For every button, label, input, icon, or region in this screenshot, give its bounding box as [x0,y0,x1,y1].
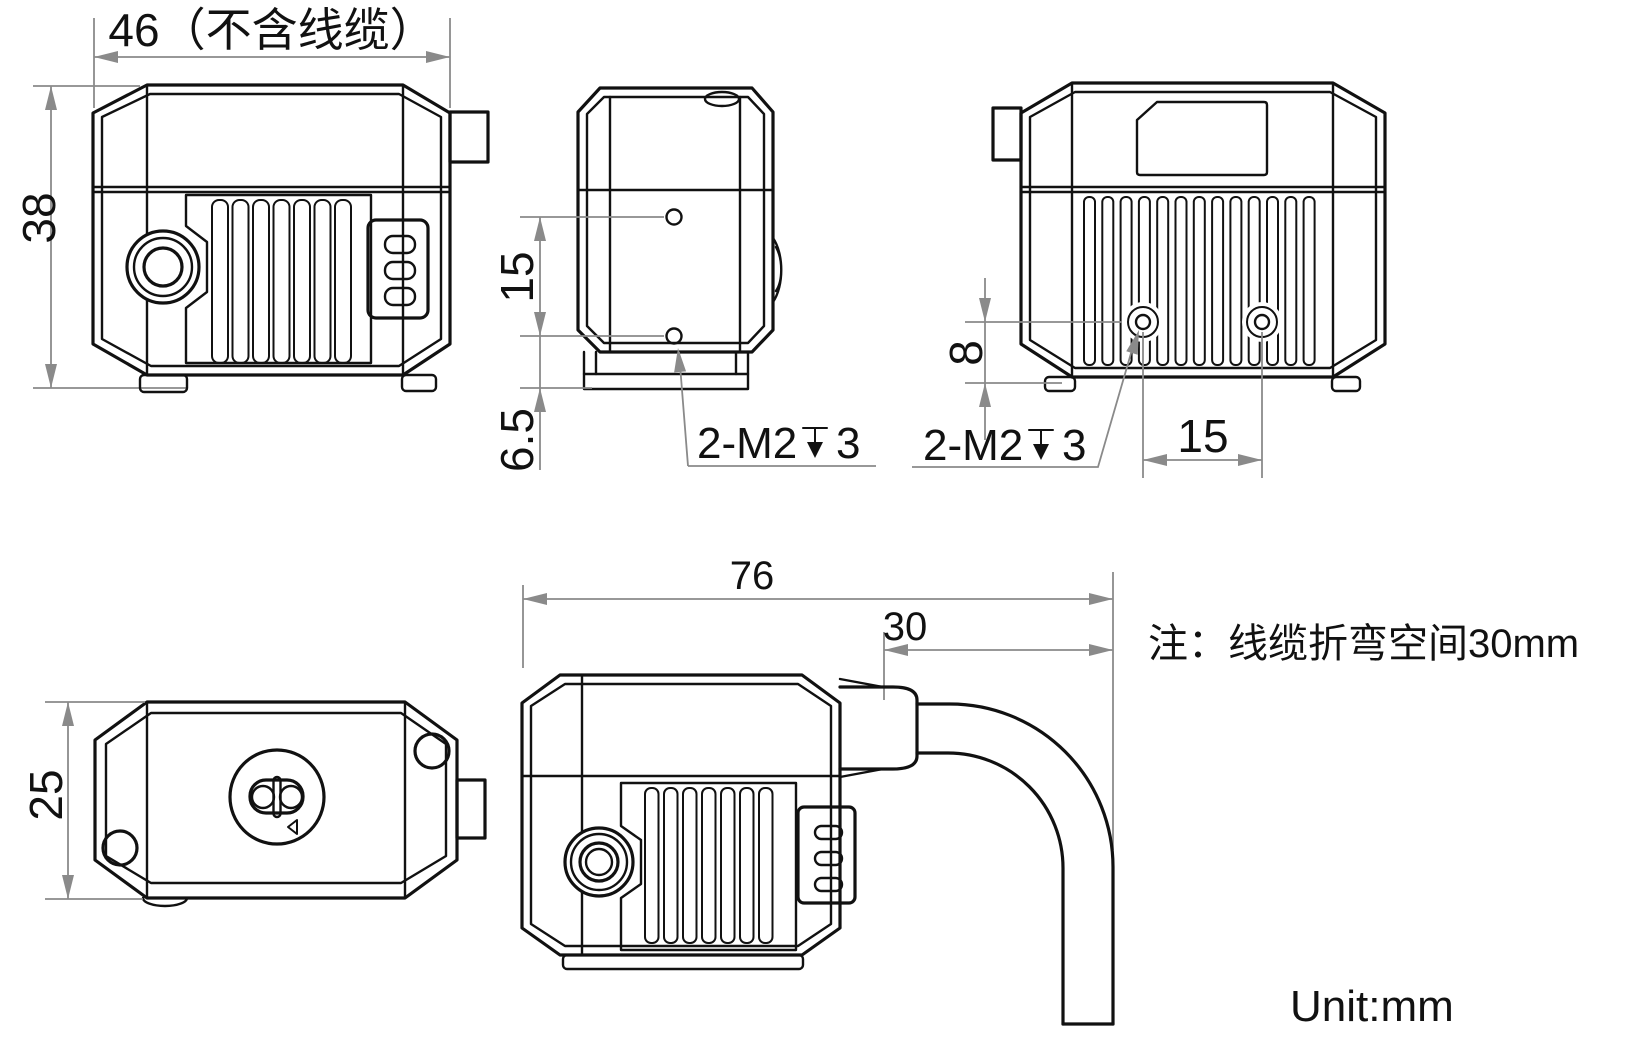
rear-foot-right [1332,377,1360,391]
fin-slot [1157,197,1168,365]
cable-body-inner-outline [531,684,831,946]
fin-slot [233,200,249,363]
led-indicator-block [798,807,855,903]
fin-slot [702,788,716,943]
arrowhead-up [979,383,991,407]
rear-frame-edges [1072,83,1333,377]
front-foot-right [402,375,436,391]
arrowhead-down [62,875,74,899]
arrowhead-left [1143,454,1167,466]
fin-slot [683,788,697,943]
corner-hole [103,831,137,865]
fin-slot [335,200,351,363]
dimension-drawing-page: 46（不含线缆） 38 [0,0,1630,1053]
top-view: 25 [20,702,485,906]
led-indicator-block [368,220,428,318]
corner-hole [415,734,449,768]
cable [840,679,1113,1024]
side-foot [584,374,748,389]
arrowhead-down [45,364,57,388]
cable-gland [840,687,917,769]
top-body-outline [95,702,457,898]
fin-slot [212,200,228,363]
front-view: 46（不含线缆） 38 [13,4,488,392]
side-hole-edge-label: 6.5 [491,408,543,472]
fin-slot [721,788,735,943]
side-hole-spacing-label: 15 [491,251,543,302]
led-window [385,236,415,253]
dial-pointer-icon [288,820,297,834]
rear-view: 8 15 2-M2 3 [912,83,1385,478]
bend-space-label: 30 [883,605,928,649]
bend-space-dimension: 30 [883,605,1113,700]
mount-hole [667,210,682,225]
cable-connector-stub [457,780,485,838]
gland-taper [840,679,883,777]
front-width-label: 46（不含线缆） [108,4,435,56]
lens-assembly [127,231,199,303]
rear-body-outline [1021,83,1385,377]
fin-slot [315,200,331,363]
fin-slot [1121,197,1132,365]
side-view: 15 6.5 2-M2 3 [491,88,876,472]
arrowhead-down [534,312,546,336]
rear-hole-spacing-label: 15 [1177,410,1228,462]
fin-slot [1176,197,1187,365]
fin-slot [759,788,773,943]
screw-bosses [1123,302,1282,342]
led-block-outline [798,807,855,903]
led-window [815,878,842,891]
arrowhead-right [1089,593,1113,605]
arrowhead-left [523,593,547,605]
fin-slot [1102,197,1113,365]
side-body-outline [578,88,773,352]
led-window [815,852,842,865]
led-block-outline [368,220,428,318]
fin-slot [1194,197,1205,365]
fin-slot [294,200,310,363]
unit-label: Unit:mm [1290,982,1454,1031]
top-depth-label: 25 [20,769,72,820]
side-base-notches [584,352,748,374]
fin-slot [1304,197,1315,365]
top-frame-edges [147,702,405,898]
focus-dial [230,750,324,844]
arrowhead-up [45,86,57,110]
heatsink-fins [212,200,351,363]
depth-symbol-icon [803,428,827,458]
dial-eye [280,786,302,808]
side-hole-edge-dimension: 6.5 [491,336,592,472]
cable-bend-note: 注：线缆折弯空间30mm [1148,622,1579,666]
thread-callout-prefix: 2-M2 [923,421,1023,470]
fin-slot [274,200,290,363]
thread-callout-depth: 3 [836,419,860,468]
cable-side-view: 76 30 [522,554,1113,1024]
top-hole [705,92,739,106]
dial-outline [230,750,324,844]
side-thread-callout: 2-M2 3 [672,347,876,468]
led-window [385,288,415,305]
front-foot-left [140,375,187,392]
arrowhead-up [62,702,74,726]
front-body-inner-outline [102,94,441,366]
cable-connector-stub [450,112,488,162]
heatsink-fins [645,788,773,943]
front-height-label: 38 [13,192,65,243]
thread-callout-depth: 3 [1062,421,1086,470]
rear-hole-spacing-dimension: 15 [1143,332,1262,478]
device-dimension-drawing: 46（不含线缆） 38 [0,0,1630,1053]
rear-foot-left [1045,377,1075,391]
led-window [385,262,415,279]
total-width-label: 76 [730,554,775,598]
fin-slot [664,788,678,943]
fin-slot [1230,197,1241,365]
lens-assembly [565,828,633,896]
rear-label-recess [1137,102,1267,175]
side-body-inner-outline [587,97,764,343]
rear-body-inner-outline [1030,92,1376,368]
thread-callout-prefix: 2-M2 [697,419,797,468]
top-body-inner-outline [106,713,446,883]
led-window [815,826,842,839]
fin-slot [253,200,269,363]
base-foot [563,955,803,969]
arrowhead-right [1089,644,1113,656]
fin-slot [1212,197,1223,365]
mount-hole [667,329,682,344]
fin-slot [1285,197,1296,365]
fin-slot [740,788,754,943]
cable-connector-stub [993,108,1021,160]
heatsink-plate [621,783,796,950]
cable-body-outline [522,675,840,955]
cable-inner-edge [917,753,1063,1024]
rear-hole-height-label: 8 [940,340,992,366]
arrowhead-right [1238,454,1262,466]
arrowhead-up [534,217,546,241]
heatsink-plate [186,195,371,363]
fin-slot [645,788,659,943]
heatsink-fins [1084,197,1315,365]
dial-bar [274,777,281,817]
dial-eye [252,786,274,808]
depth-symbol-icon [1029,430,1053,460]
arrowhead-down [979,298,991,322]
fin-slot [1084,197,1095,365]
rear-band-line [1021,187,1385,192]
